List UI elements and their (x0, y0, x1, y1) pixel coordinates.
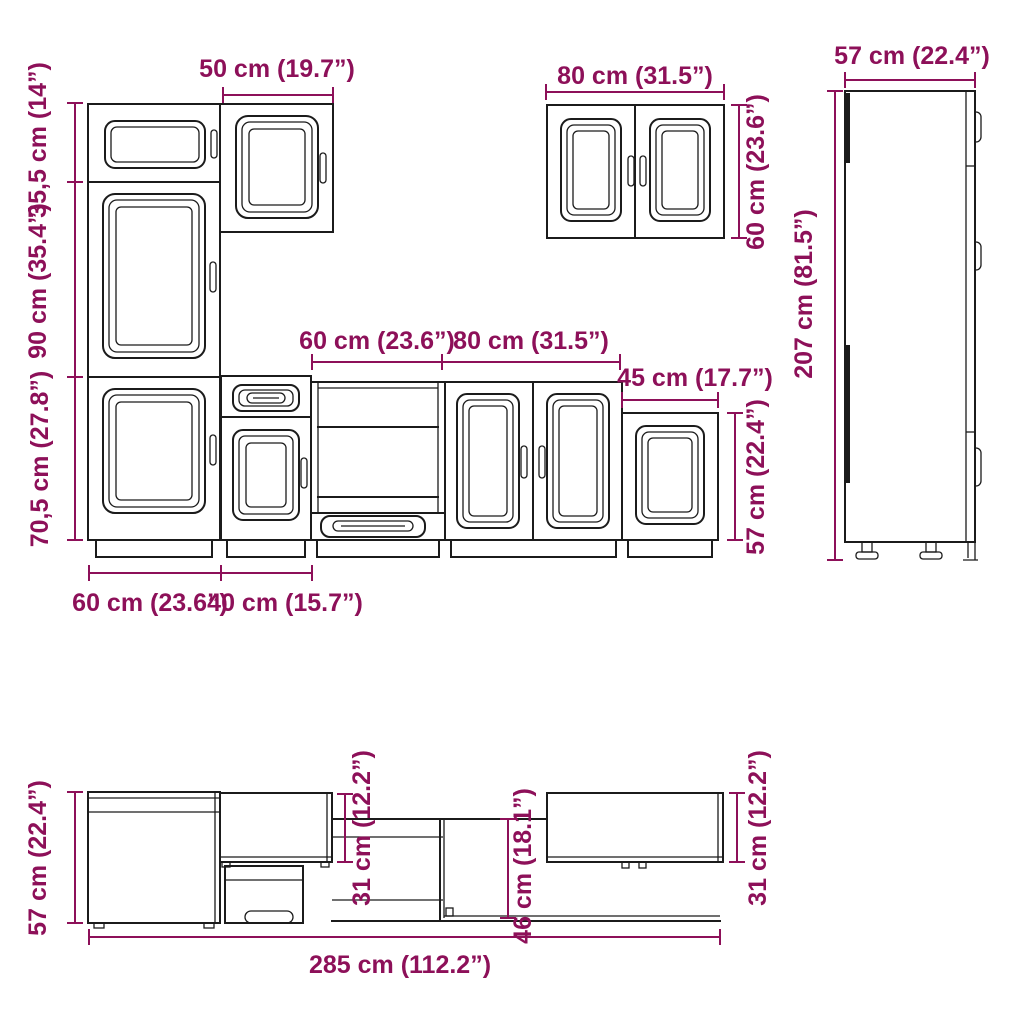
dim-label-wall-cabinet-height: 60 cm (23.6”) (742, 94, 770, 250)
plan-protruding-unit (220, 793, 332, 862)
dim-label-wall-cabinet-width: 80 cm (31.5”) (557, 62, 713, 90)
dim-label-base-height: 57 cm (22.4”) (742, 399, 770, 555)
dim-label-side-height: 207 cm (81.5”) (790, 209, 818, 379)
wall-cabinet-front-view (547, 105, 724, 238)
door-handle (628, 156, 634, 186)
tall-cabinet-outline (88, 104, 220, 540)
tall-top-door (105, 121, 217, 168)
base-45-cabinet (622, 413, 718, 557)
dim-label-plan-mid-wall-depth: 31 cm (12.2”) (348, 750, 376, 906)
plan-drawer-unit (225, 866, 303, 923)
dim-line-57-plan (67, 792, 83, 923)
dim-line-285 (89, 929, 720, 945)
dim-label-tall-lower-height: 70,5 cm (27.8”) (26, 371, 54, 548)
side-body-outline (845, 91, 975, 542)
base-80-cabinet (445, 382, 622, 557)
right-door-panel (650, 119, 710, 221)
dim-line-31-right (729, 793, 745, 862)
door-handle (301, 458, 307, 488)
tall-bottom-door (103, 389, 216, 513)
tall-cabinet-side-view (845, 91, 981, 560)
dim-label-tall-middle-height: 90 cm (35.4”) (24, 203, 52, 359)
plan-view (88, 792, 723, 928)
left-door-panel (561, 119, 621, 221)
door-panel (636, 426, 704, 524)
upper-50-cabinet (220, 104, 333, 232)
door-handle (210, 262, 216, 292)
tall-plinth (96, 540, 212, 557)
dim-label-plan-left-depth: 57 cm (22.4”) (24, 780, 52, 936)
tall-unit-front-view (88, 104, 333, 557)
plinth (227, 540, 305, 557)
dim-line-heights-left (67, 103, 83, 540)
base-60-oven-cabinet (311, 382, 445, 557)
plinth (628, 540, 712, 557)
dim-label-plan-counter-depth: 46 cm (18.1”) (509, 788, 537, 944)
diagram-canvas: 35,5 cm (14”) 90 cm (35.4”) 70,5 cm (27.… (0, 0, 1024, 1024)
right-door-panel (547, 394, 609, 528)
tall-middle-door (103, 194, 216, 358)
door-handle (210, 435, 216, 465)
plinth (451, 540, 616, 557)
door-handle (640, 156, 646, 186)
door-handle (539, 446, 545, 478)
dim-line-57-side (845, 72, 975, 88)
dim-label-upper-50-width: 50 cm (19.7”) (199, 55, 355, 83)
dim-label-side-depth: 57 cm (22.4”) (834, 42, 990, 70)
dim-label-bottom-40-width: 40 cm (15.7”) (207, 589, 363, 617)
dimension-diagram: 35,5 cm (14”) 90 cm (35.4”) 70,5 cm (27.… (0, 0, 1024, 1024)
dim-label-plan-right-wall-depth: 31 cm (12.2”) (744, 750, 772, 906)
plinth (317, 540, 439, 557)
dim-line-50 (223, 87, 333, 103)
base-40-cabinet (221, 376, 311, 557)
dim-line-57-base (727, 413, 743, 540)
base-run-front-view (221, 376, 718, 557)
dim-label-tall-upper-height: 35,5 cm (14”) (24, 62, 52, 218)
drawer-pull (245, 911, 293, 923)
plan-wall-cabinet (547, 793, 723, 868)
dim-label-sink-width: 80 cm (31.5”) (453, 327, 609, 355)
adjustable-feet (856, 542, 978, 560)
door-handle (521, 446, 527, 478)
dim-line-45 (622, 392, 718, 408)
door-handle (211, 130, 217, 158)
dim-line-60-80 (312, 354, 620, 370)
dim-label-bottom-60-width: 60 cm (23.6”) (72, 589, 228, 617)
dim-label-end-45-width: 45 cm (17.7”) (617, 364, 773, 392)
dim-label-total-width: 285 cm (112.2”) (309, 951, 491, 979)
dim-label-oven-width: 60 cm (23.6”) (299, 327, 455, 355)
left-door-panel (457, 394, 519, 528)
dim-line-60-40 (89, 565, 312, 581)
door-handle (320, 153, 326, 183)
dim-line-207 (827, 91, 843, 560)
